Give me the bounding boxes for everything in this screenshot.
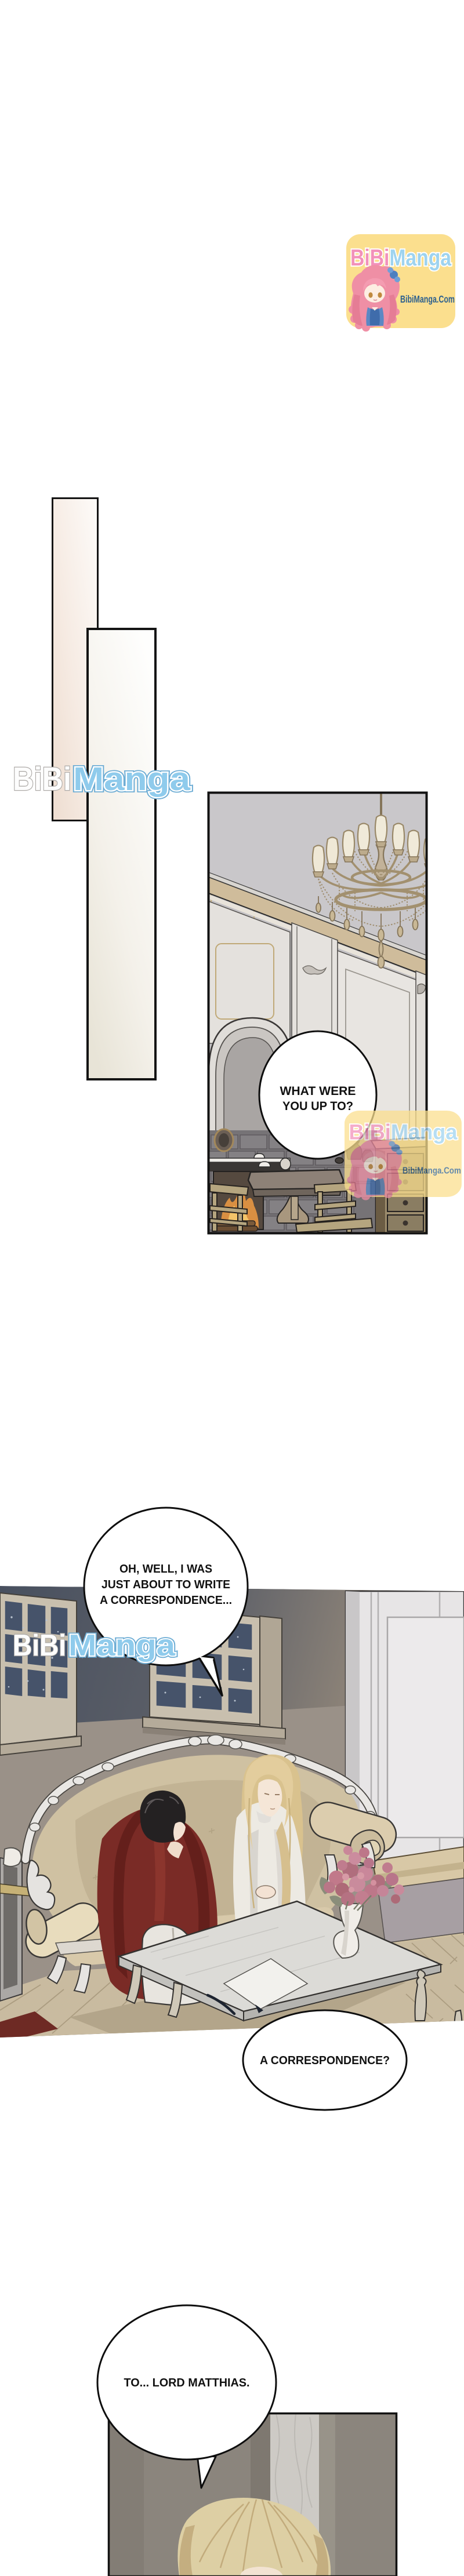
svg-text:BiBi: BiBi (13, 1629, 66, 1662)
svg-text:A CORRESPONDENCE...: A CORRESPONDENCE... (100, 1593, 232, 1607)
svg-text:TO... LORD MATTHIAS.: TO... LORD MATTHIAS. (124, 2376, 250, 2389)
svg-text:Manga: Manga (73, 761, 191, 798)
svg-text:YOU UP TO?: YOU UP TO? (282, 1100, 353, 1113)
svg-text:WHAT WERE: WHAT WERE (280, 1085, 356, 1098)
svg-text:JUST ABOUT TO WRITE: JUST ABOUT TO WRITE (101, 1578, 230, 1591)
svg-text:OH, WELL, I WAS: OH, WELL, I WAS (119, 1562, 212, 1576)
svg-text:BiBi: BiBi (13, 761, 71, 798)
svg-text:Manga: Manga (68, 1629, 176, 1662)
svg-text:A CORRESPONDENCE?: A CORRESPONDENCE? (260, 2054, 390, 2067)
